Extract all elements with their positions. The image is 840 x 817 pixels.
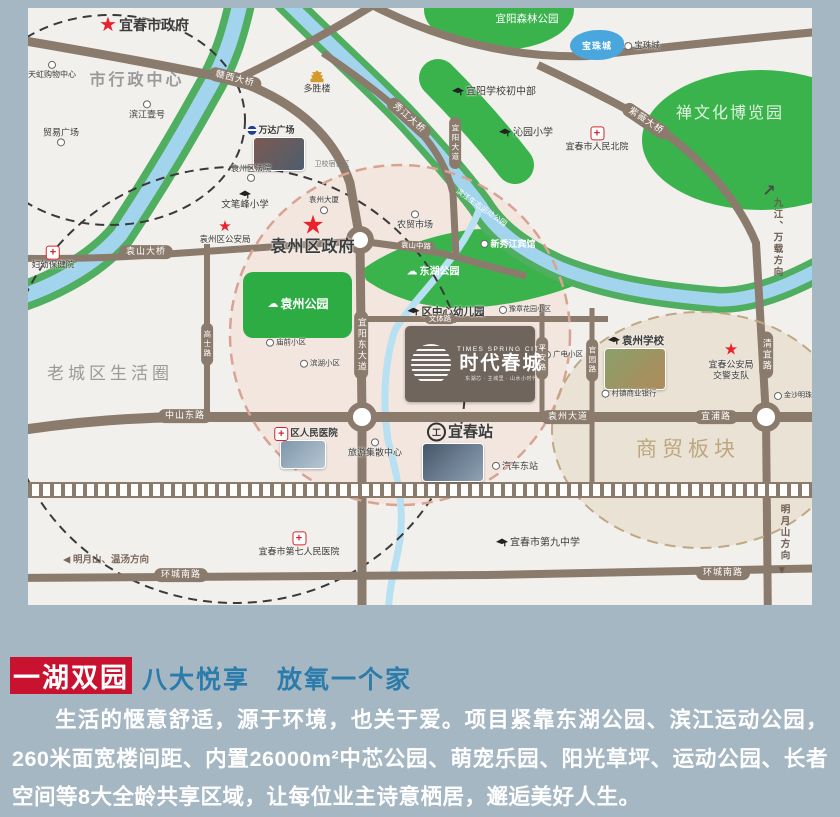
renmin-north-hospital-label: 宜春市人民北院 <box>565 141 628 151</box>
yuanzhou-avenue-pill: 袁州大道 <box>541 410 595 424</box>
jinsha-plaza: 金沙明珠广场 <box>774 392 812 400</box>
section-headline: 八大悦享 放氧一个家 <box>142 660 412 696</box>
baozhu-city: 宝珠城 <box>624 41 660 51</box>
wenti-road-pill: 文体路 <box>425 314 456 324</box>
cross-icon <box>46 246 60 260</box>
binhu-estate: 滨湖小区 <box>300 360 340 369</box>
yuanzhou-gov-label: 袁州区政府 <box>270 238 355 256</box>
roundabout-central <box>350 405 374 429</box>
yuanzhou-park: 袁州公园 <box>267 298 328 312</box>
dot-icon <box>774 392 782 400</box>
dot-icon <box>411 210 419 218</box>
roundabout-east <box>754 405 778 429</box>
dot-icon <box>499 306 507 314</box>
miaoqian-estate: 庙前小区 <box>266 339 306 348</box>
dot-icon <box>247 174 255 182</box>
mingyueshan-dir: 明月山方向 <box>778 504 789 562</box>
rural-bank-label: 村镇商业银行 <box>612 390 657 399</box>
huancheng-south-east-pill: 环城南路 <box>696 566 750 580</box>
huancheng-south-road <box>28 568 812 578</box>
star-icon <box>301 211 324 237</box>
baozhu-lake: 宝珠城 <box>570 30 624 60</box>
school-icon <box>408 308 420 317</box>
yuanzhou-police-label: 袁州区公安局 <box>199 235 250 245</box>
miaoqian-estate-label: 庙前小区 <box>276 339 306 348</box>
district-renmin-hospital: 区人民医院 <box>274 427 338 441</box>
weixiao-dorm: 卫校宿舍区 <box>315 161 350 169</box>
cloud-icon <box>267 299 278 310</box>
yiyang-middle-school: 宜阳学校初中部 <box>452 86 536 98</box>
duoshenglou-label: 多胜楼 <box>303 83 330 93</box>
jiujiang-wanzai-dir-label: 九江、万载方向 <box>771 198 782 279</box>
section-badge: 一湖双园 <box>10 657 132 694</box>
school-icon <box>496 539 508 548</box>
mingyue-wentang-dir-label: ◀ 明月山、温汤方向 <box>63 556 149 567</box>
yuanzhou-court-label: 袁州区法院 <box>231 164 271 173</box>
duoshenglou: 多胜楼 <box>303 70 330 93</box>
ninth-middle-school-label: 宜春市第九中学 <box>510 537 580 549</box>
bottom-section: 一湖双园 八大悦享 放氧一个家 生活的惬意舒适，源于环境，也关于爱。项目紧靠东湖… <box>0 605 840 798</box>
yuanzhou-tower-label: 袁州大厦 <box>309 196 339 205</box>
dot-icon <box>143 100 151 108</box>
zen-expo-text: 禅文化博览园 <box>676 105 784 123</box>
admin-center-text-label: 市行政中心 <box>89 72 184 90</box>
xinxiujiang-hotel: 新秀江宾馆 <box>480 239 535 249</box>
mingyueshan-arrow-label: ▼ <box>777 565 788 578</box>
dot-icon <box>371 438 379 446</box>
traffic-police: 宜春公安局交警支队 <box>708 343 753 382</box>
guangdian-estate: 广电小区 <box>543 351 583 360</box>
tianhong-mall-label: 天虹购物中心 <box>28 70 76 79</box>
wanda-icon <box>247 126 256 135</box>
seventh-renmin-hospital-label: 宜春市第七人民医院 <box>258 546 339 556</box>
mingyueshan-arrow: ▼ <box>777 565 788 578</box>
cross-icon <box>590 126 604 140</box>
project-name-cn: 时代春城 <box>459 353 543 376</box>
section-paragraph: 生活的惬意舒适，源于环境，也关于爱。项目紧靠东湖公园、滨江运动公园，260米面宽… <box>12 701 828 817</box>
mingyue-wentang-dir: ◀ 明月山、温汤方向 <box>63 556 149 567</box>
ninth-middle-school: 宜春市第九中学 <box>496 537 580 549</box>
train-icon <box>427 423 446 442</box>
project-text: TIMES SPRING CITY 时代春城 东湖芯 · 主城里 · 山水小时代 <box>457 346 546 383</box>
donghu-park-label: 东湖公园 <box>420 266 460 278</box>
guangdian-estate-label: 广电小区 <box>553 351 583 360</box>
dot-icon <box>48 61 56 69</box>
renmin-north-hospital: 宜春市人民北院 <box>565 126 628 151</box>
xinxiujiang-hotel-label: 新秀江宾馆 <box>490 239 535 249</box>
wanda-plaza: 万达广场 <box>247 125 294 135</box>
dot-icon <box>300 360 308 368</box>
school-icon <box>452 88 464 97</box>
yuanzhou-school-label: 袁州学校 <box>622 335 664 347</box>
yuanshan-mid-road-pill: 袁山中路 <box>397 240 435 252</box>
yuanzhou-court: 袁州区法院 <box>231 164 271 182</box>
weixiao-dorm-label: 卫校宿舍区 <box>315 161 350 169</box>
baozhu-lake-label: 宝珠城 <box>582 39 612 52</box>
tourist-center-label: 旅游集散中心 <box>348 447 402 457</box>
yichun-station: 宜春站 <box>427 423 493 442</box>
dot-icon <box>266 339 274 347</box>
yuzhang-garden-estate-label: 豫章花园小区 <box>509 306 551 314</box>
project-name-en: TIMES SPRING CITY <box>457 346 546 353</box>
jinsha-plaza-label: 金沙明珠广场 <box>784 392 812 400</box>
cross-icon <box>292 531 306 545</box>
fuyou-hospital: 妇幼保健院 <box>32 246 75 271</box>
star-icon <box>99 15 117 35</box>
nongmao-market: 农贸市场 <box>397 210 433 229</box>
zhongshan-east-road-pill: 中山东路 <box>158 409 212 423</box>
old-town-text: 老城区生活圈 <box>47 364 173 384</box>
binjiang-one: 滨江壹号 <box>129 100 165 119</box>
star-icon <box>218 219 231 234</box>
donghu-park: 东湖公园 <box>407 266 460 278</box>
yipu-road-pill: 宜浦路 <box>694 410 738 424</box>
project-globe-icon <box>411 344 451 384</box>
qingyi-road-pill: 清宜路 <box>759 332 773 379</box>
gaoshi-road-pill: 高士路 <box>201 323 213 366</box>
nongmao-market-label: 农贸市场 <box>397 219 433 229</box>
jiujiang-wanzai-dir: 九江、万载方向 <box>771 198 782 279</box>
traffic-police-label: 宜春公安局 <box>708 360 753 370</box>
wanda-plaza-label: 万达广场 <box>258 125 294 135</box>
zen-expo-text-label: 禅文化博览园 <box>676 105 784 123</box>
yiyang-forest-text: 宜阳森林公园 <box>496 13 559 25</box>
trade-block-text: 商贸板块 <box>636 438 740 462</box>
dot-icon <box>492 462 500 470</box>
dot-icon <box>602 390 610 398</box>
yichun-city-gov-label: 宜春市政府 <box>119 17 189 33</box>
cross-icon <box>274 427 288 441</box>
station-photo <box>422 443 484 482</box>
dot-icon <box>57 139 65 147</box>
yiyang-forest-text-label: 宜阳森林公园 <box>496 13 559 25</box>
yiyang-middle-school-label: 宜阳学校初中部 <box>466 86 536 98</box>
cloud-icon <box>407 267 418 278</box>
project-logo-box: TIMES SPRING CITY 时代春城 东湖芯 · 主城里 · 山水小时代 <box>405 326 535 402</box>
bus-east-station: 汽车东站 <box>492 461 538 471</box>
promo-page: { "page":{"bg":"#a6b7c4"}, "map":{ "bg":… <box>0 0 840 798</box>
mingyueshan-dir-label: 明月山方向 <box>778 504 789 562</box>
maoyi-square: 贸易广场 <box>43 127 79 146</box>
admin-center-text: 市行政中心 <box>89 72 184 90</box>
yichun-city-gov: 宜春市政府 <box>99 15 189 35</box>
baozhu-city-label: 宝珠城 <box>634 41 660 51</box>
yuanzhou-park-label: 袁州公园 <box>280 298 328 312</box>
dot-icon <box>480 240 488 248</box>
railway-line <box>28 482 812 498</box>
building-icon <box>310 70 323 82</box>
bus-east-station-label: 汽车东站 <box>502 461 538 471</box>
school-icon <box>239 191 251 200</box>
seventh-renmin-hospital: 宜春市第七人民医院 <box>258 531 339 556</box>
yuanzhou-school: 袁州学校 <box>608 335 664 347</box>
huancheng-south-west-pill: 环城南路 <box>154 568 208 582</box>
yiyang-avenue-pill: 宜阳大道 <box>449 117 461 169</box>
yuzhang-garden-estate: 豫章花园小区 <box>499 306 551 314</box>
binjiang-one-label: 滨江壹号 <box>129 109 165 119</box>
qinyuan-primary-label: 沁园小学 <box>513 127 553 139</box>
trade-block-text-label: 商贸板块 <box>636 438 740 462</box>
traffic-police-label: 交警支队 <box>713 371 749 381</box>
star-icon <box>724 343 738 359</box>
old-town-text-label: 老城区生活圈 <box>47 364 173 384</box>
yichun-station-label: 宜春站 <box>448 423 493 440</box>
rural-bank: 村镇商业银行 <box>602 390 657 399</box>
wenbifeng-school-label: 文笔峰小学 <box>221 201 269 212</box>
fuyou-hospital-label: 妇幼保健院 <box>32 261 75 271</box>
guanyuan-road-pill: 官园路 <box>586 339 598 382</box>
tourist-center: 旅游集散中心 <box>348 438 402 457</box>
district-hospital-photo <box>280 440 326 469</box>
yuanshan-bridge-pill: 袁山大桥 <box>119 245 173 259</box>
yiyang-east-avenue-pill: 宜阳东大道 <box>354 311 368 380</box>
dot-icon <box>624 42 632 50</box>
binhu-estate-label: 滨湖小区 <box>310 360 340 369</box>
maoyi-square-label: 贸易广场 <box>43 127 79 137</box>
wenbifeng-school: 文笔峰小学 <box>221 191 269 212</box>
location-map: 宝珠城 宜春市政府市行政中心天虹购物中心滨江壹号贸易广场多胜楼万达广场袁州区法院… <box>28 8 812 605</box>
tianhong-mall: 天虹购物中心 <box>28 61 76 79</box>
qinyuan-primary: 沁园小学 <box>499 127 553 139</box>
project-tagline: 东湖芯 · 主城里 · 山水小时代 <box>465 375 537 382</box>
school-icon <box>499 129 511 138</box>
yuanzhou-school-photo <box>604 348 666 390</box>
yuanzhou-gov: 袁州区政府 <box>270 211 355 256</box>
school-icon <box>608 337 620 346</box>
yuanzhou-police: 袁州区公安局 <box>199 219 250 245</box>
district-renmin-hospital-label: 区人民医院 <box>290 429 338 440</box>
